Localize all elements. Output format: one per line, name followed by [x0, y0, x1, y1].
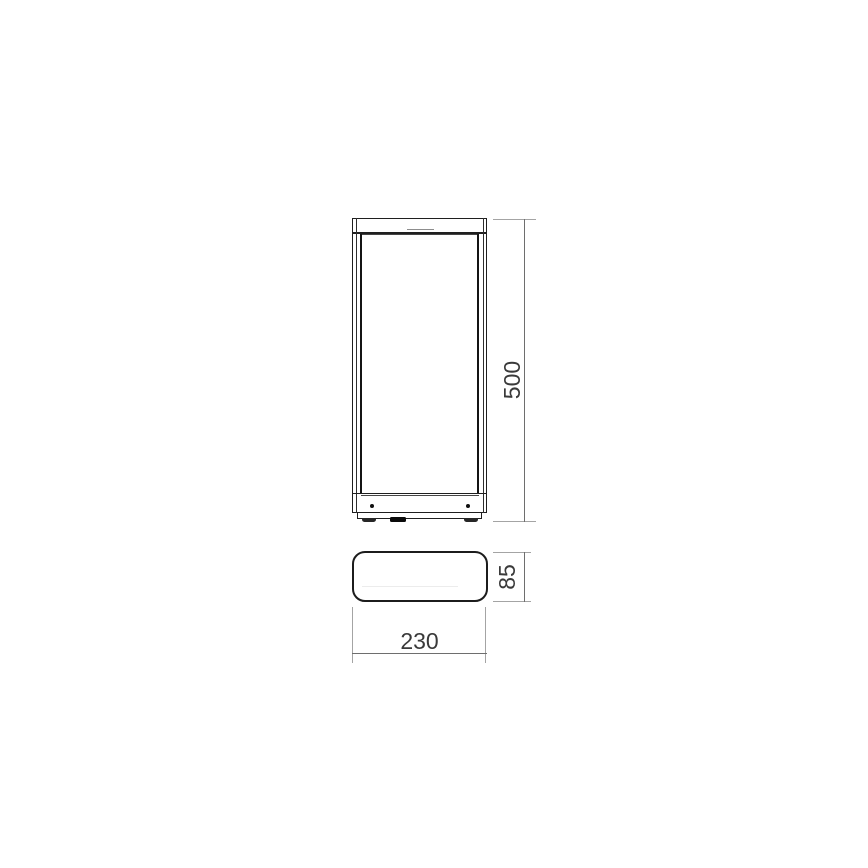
dim-width-ext-right: [485, 607, 486, 663]
left-screw-dot: [370, 504, 374, 508]
front-view-outline: [352, 218, 488, 513]
dim-height-ext-bottom: [493, 521, 536, 522]
dim-depth-label: 85: [495, 552, 519, 602]
cable-gland: [390, 517, 407, 522]
plan-view-outline: [352, 551, 488, 602]
diffuser-bottom-line: [361, 495, 479, 496]
drawing-canvas: 500 85 230: [0, 0, 868, 868]
dim-width-label: 230: [375, 629, 465, 653]
cap-seam-line: [407, 229, 434, 231]
right-foot: [464, 518, 478, 521]
left-foot: [362, 518, 376, 521]
diffuser-top-line: [361, 234, 479, 235]
dim-depth-line: [524, 552, 525, 602]
plan-view-inner-hint: [362, 586, 458, 587]
left-post-line: [356, 218, 357, 513]
dim-height-ext-top: [493, 219, 536, 220]
dim-width-ext-left: [352, 607, 353, 663]
bottom-band-top-line: [352, 493, 487, 494]
right-post-line: [483, 218, 484, 513]
right-screw-dot: [466, 504, 470, 508]
dim-height-label: 500: [500, 345, 524, 415]
right-glass-edge: [477, 234, 479, 493]
top-cap-bottom-line: [352, 232, 487, 233]
left-glass-edge: [360, 234, 362, 493]
